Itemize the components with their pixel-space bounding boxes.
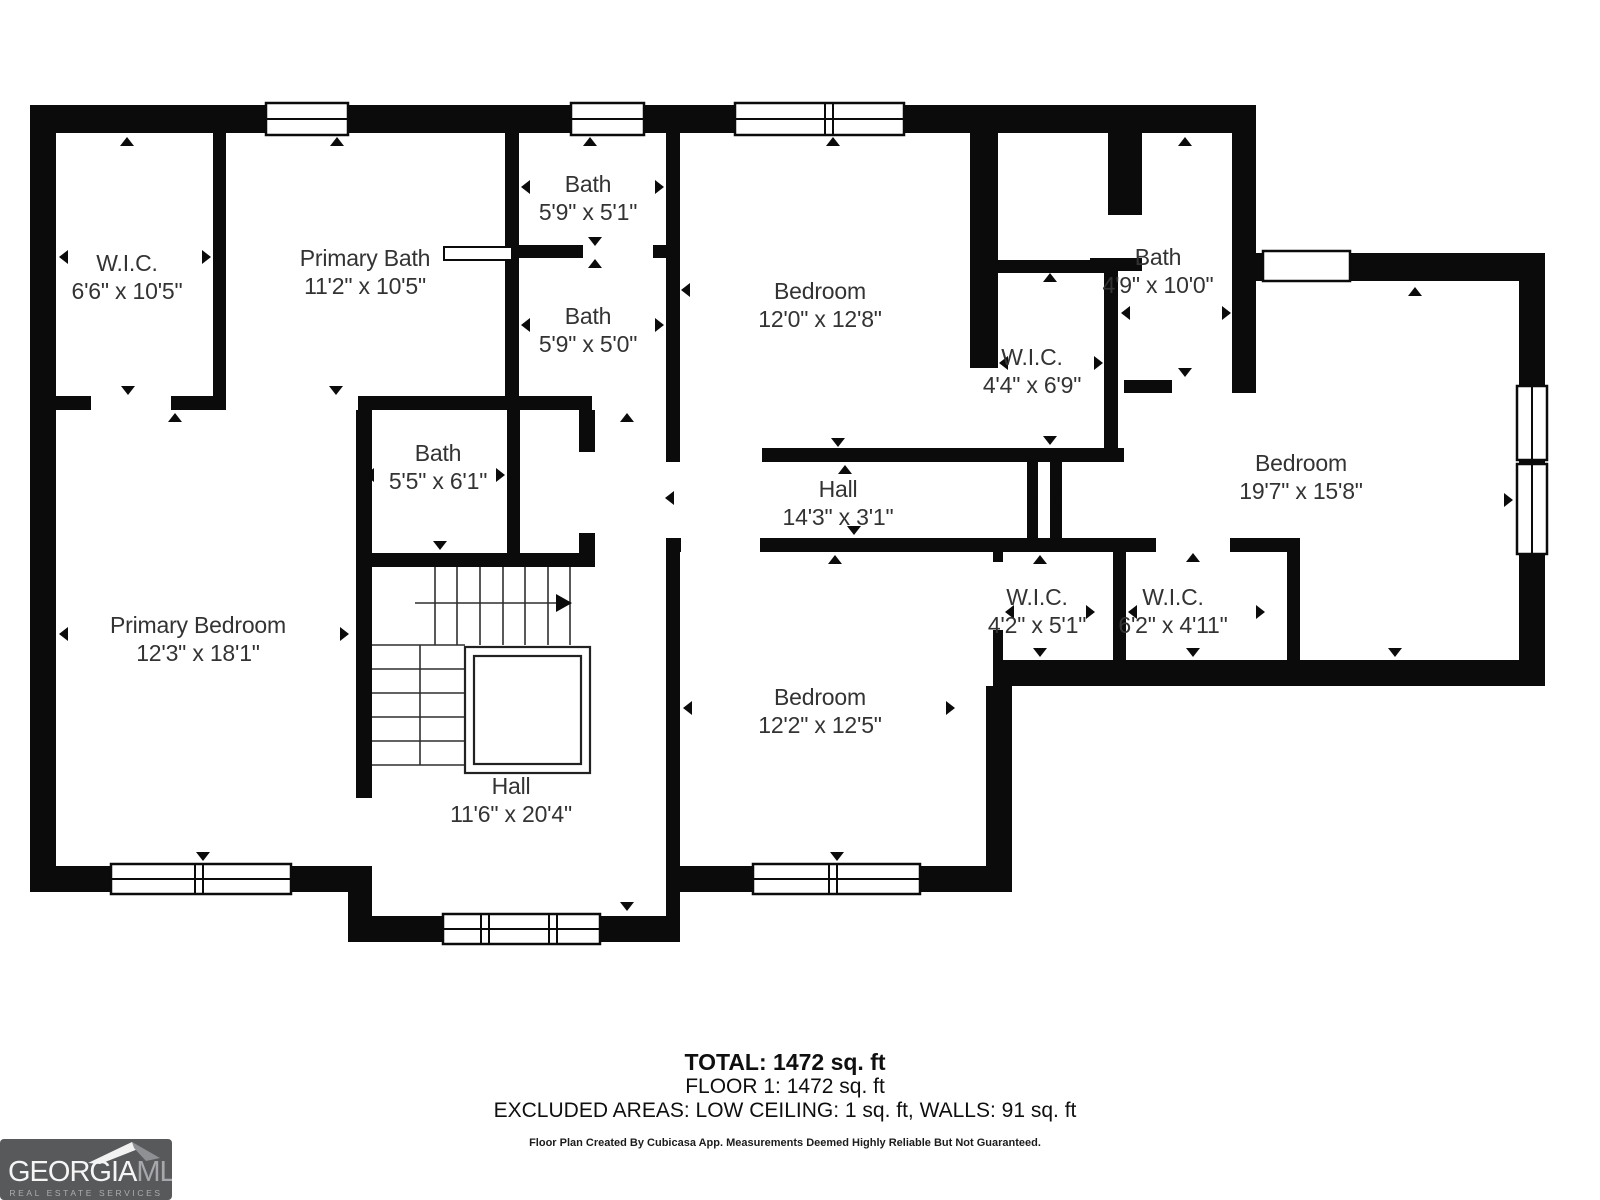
room-name: W.I.C. <box>988 583 1086 611</box>
brand-tagline: REAL ESTATE SERVICES <box>0 1188 172 1198</box>
room-name: Bath <box>1103 243 1214 271</box>
room-dims: 4'9" x 10'0" <box>1103 271 1214 299</box>
area-summary: TOTAL: 1472 sq. ft FLOOR 1: 1472 sq. ft … <box>494 1050 1077 1149</box>
room-name: Bath <box>539 302 637 330</box>
room-name: Bedroom <box>1239 449 1363 477</box>
room-name: W.I.C. <box>1118 583 1227 611</box>
room-label-wic-66: W.I.C. 6'6" x 10'5" <box>72 249 183 305</box>
room-name: Bedroom <box>758 683 882 711</box>
room-dims: 11'2" x 10'5" <box>300 272 431 300</box>
room-label-bedroom-120x128: Bedroom 12'0" x 12'8" <box>758 277 882 333</box>
brand-mls: MLS <box>136 1156 172 1188</box>
room-label-bath-59x51: Bath 5'9" x 5'1" <box>539 170 637 226</box>
floor-area: FLOOR 1: 1472 sq. ft <box>494 1075 1077 1099</box>
room-dims: 5'9" x 5'1" <box>539 198 637 226</box>
floorplan-page: W.I.C. 6'6" x 10'5" Primary Bath 11'2" x… <box>0 0 1600 1200</box>
room-name: Bedroom <box>758 277 882 305</box>
room-dims: 6'6" x 10'5" <box>72 277 183 305</box>
room-dims: 4'2" x 5'1" <box>988 611 1086 639</box>
room-dims: 5'9" x 5'0" <box>539 330 637 358</box>
room-dims: 11'6" x 20'4" <box>450 800 572 828</box>
room-name: Primary Bath <box>300 244 431 272</box>
room-label-primary-bath: Primary Bath 11'2" x 10'5" <box>300 244 431 300</box>
room-label-bedroom-197x158: Bedroom 19'7" x 15'8" <box>1239 449 1363 505</box>
room-label-bath-59x50: Bath 5'9" x 5'0" <box>539 302 637 358</box>
room-label-bath-49x100: Bath 4'9" x 10'0" <box>1103 243 1214 299</box>
total-area: TOTAL: 1472 sq. ft <box>494 1050 1077 1075</box>
room-dims: 12'2" x 12'5" <box>758 711 882 739</box>
room-dims: 12'0" x 12'8" <box>758 305 882 333</box>
room-dims: 12'3" x 18'1" <box>110 639 286 667</box>
room-label-bedroom-122x125: Bedroom 12'2" x 12'5" <box>758 683 882 739</box>
room-name: Primary Bedroom <box>110 611 286 639</box>
room-dims: 19'7" x 15'8" <box>1239 477 1363 505</box>
bath-shelf <box>444 247 512 260</box>
room-name: Hall <box>783 475 894 503</box>
room-label-hall-143x31: Hall 14'3" x 3'1" <box>783 475 894 531</box>
brand-georgia: GEORGIA <box>8 1156 136 1188</box>
room-name: W.I.C. <box>72 249 183 277</box>
room-name: Bath <box>389 439 487 467</box>
floorplan-graphic <box>0 0 1600 1200</box>
room-name: Hall <box>450 772 572 800</box>
room-label-hall-116x204: Hall 11'6" x 20'4" <box>450 772 572 828</box>
room-name: W.I.C. <box>983 343 1081 371</box>
room-dims: 14'3" x 3'1" <box>783 503 894 531</box>
room-name: Bath <box>539 170 637 198</box>
georgia-mls-logo: GEORGIAMLS REAL ESTATE SERVICES <box>0 1139 172 1200</box>
room-label-primary-bedroom: Primary Bedroom 12'3" x 18'1" <box>110 611 286 667</box>
room-dims: 6'2" x 4'11" <box>1118 611 1227 639</box>
room-dims: 5'5" x 6'1" <box>389 467 487 495</box>
room-label-bath-55x61: Bath 5'5" x 6'1" <box>389 439 487 495</box>
room-dims: 4'4" x 6'9" <box>983 371 1081 399</box>
excluded-areas: EXCLUDED AREAS: LOW CEILING: 1 sq. ft, W… <box>494 1099 1077 1123</box>
hall-door-opening <box>1038 462 1050 538</box>
room-label-wic-42: W.I.C. 4'2" x 5'1" <box>988 583 1086 639</box>
room-label-wic-62: W.I.C. 6'2" x 4'11" <box>1118 583 1227 639</box>
room-label-wic-44: W.I.C. 4'4" x 6'9" <box>983 343 1081 399</box>
disclaimer-text: Floor Plan Created By Cubicasa App. Meas… <box>494 1137 1077 1149</box>
brand-wordmark: GEORGIAMLS <box>8 1157 172 1187</box>
